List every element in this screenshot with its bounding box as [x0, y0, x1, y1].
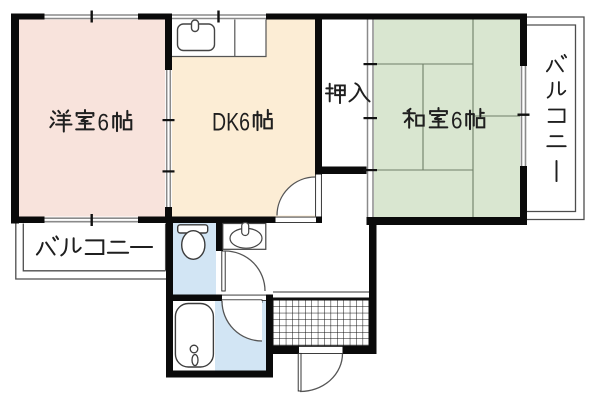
svg-text:DK6: DK6 — [212, 109, 250, 137]
svg-text:6: 6 — [98, 110, 110, 137]
svg-text:6: 6 — [451, 108, 463, 135]
